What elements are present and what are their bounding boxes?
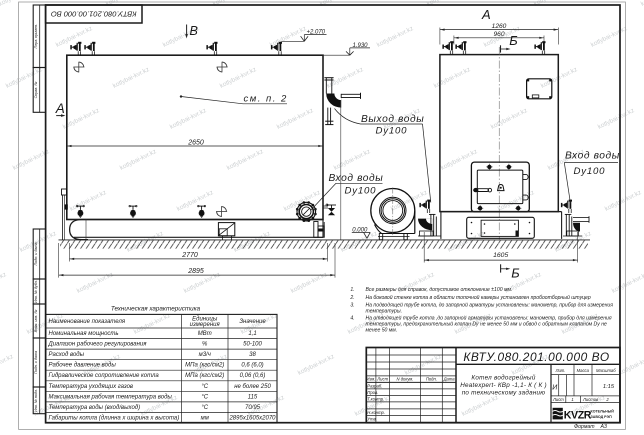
- svg-text:3.: 3.: [350, 303, 354, 309]
- svg-text:А3: А3: [600, 424, 607, 430]
- svg-text:Лист: Лист: [552, 397, 564, 402]
- svg-text:МПа (кгс/см2): МПа (кгс/см2): [185, 363, 224, 369]
- svg-text:Взам. инв. №: Взам. инв. №: [34, 310, 38, 333]
- svg-text:4.: 4.: [350, 315, 354, 321]
- svg-text:50-100: 50-100: [243, 342, 262, 348]
- svg-text:Вход воды: Вход воды: [565, 151, 620, 162]
- svg-text:м3/ч: м3/ч: [199, 352, 211, 358]
- svg-text:Т.контр.: Т.контр.: [367, 396, 384, 401]
- svg-text:температуры, предохранительный: температуры, предохранительный клапан Dу…: [366, 320, 608, 327]
- svg-text:Dy100: Dy100: [345, 186, 377, 197]
- svg-text:мм: мм: [201, 415, 209, 421]
- svg-text:Техническая характеристика: Техническая характеристика: [111, 306, 201, 313]
- svg-text:А: А: [55, 101, 65, 116]
- svg-text:1.930: 1.930: [353, 43, 369, 49]
- svg-text:70/95: 70/95: [245, 405, 261, 411]
- svg-text:Dy100: Dy100: [376, 126, 408, 137]
- svg-text:Пров.: Пров.: [367, 390, 378, 395]
- svg-text:см. п. 2: см. п. 2: [244, 94, 288, 105]
- svg-text:°С: °С: [201, 405, 208, 411]
- svg-text:2650: 2650: [187, 139, 204, 146]
- svg-text:Наименование показателя: Наименование показателя: [49, 319, 126, 325]
- svg-text:Лист: Лист: [376, 377, 388, 382]
- svg-text:KVZR: KVZR: [564, 410, 592, 422]
- svg-text:Н.контр.: Н.контр.: [367, 410, 385, 415]
- svg-text:А: А: [481, 7, 491, 22]
- svg-text:Выход воды: Выход воды: [361, 114, 424, 125]
- svg-text:°С: °С: [201, 384, 208, 390]
- svg-text:2895: 2895: [187, 268, 204, 275]
- svg-text:Котел водогрейный: Котел водогрейный: [471, 374, 535, 382]
- svg-text:Температура воды (вход/выход): Температура воды (вход/выход): [49, 405, 141, 411]
- svg-text:+2.070: +2.070: [307, 30, 326, 36]
- svg-text:измерения: измерения: [190, 322, 221, 328]
- svg-text:Справ. №: Справ. №: [34, 82, 38, 99]
- svg-text:Dy100: Dy100: [574, 166, 606, 177]
- svg-text:N докум.: N докум.: [397, 377, 414, 382]
- svg-text:Разраб.: Разраб.: [367, 383, 382, 388]
- svg-text:В: В: [190, 24, 198, 38]
- svg-text:Номинальная мощность: Номинальная мощность: [49, 331, 119, 337]
- svg-text:На боковой стенке котла в обла: На боковой стенке котла в области топочн…: [366, 294, 591, 301]
- svg-text:температуры.: температуры.: [366, 309, 403, 315]
- svg-text:0,06 (0,6): 0,06 (0,6): [240, 373, 266, 379]
- svg-text:Вход воды: Вход воды: [329, 173, 384, 184]
- svg-text:по техническому заданию: по техническому заданию: [462, 389, 546, 397]
- svg-text:Габариты котла (длинна х ширин: Габариты котла (длинна х ширина х высота…: [49, 415, 180, 421]
- svg-text:Heatexpert- КВр -1,1- К ( К ): Heatexpert- КВр -1,1- К ( К ): [460, 382, 547, 389]
- svg-text:1605: 1605: [493, 252, 508, 259]
- svg-text:КВТУ.080.201.00.000 ВО: КВТУ.080.201.00.000 ВО: [463, 350, 609, 364]
- svg-text:1260: 1260: [492, 23, 507, 30]
- svg-text:Формат: Формат: [574, 424, 595, 430]
- svg-text:КВТУ.080.201.00.000 ВО: КВТУ.080.201.00.000 ВО: [51, 9, 137, 18]
- svg-text:Б: Б: [511, 265, 520, 280]
- svg-text:°С: °С: [201, 394, 208, 400]
- svg-text:Все размеры для справок, допус: Все размеры для справок, допустимое откл…: [366, 287, 513, 293]
- svg-text:Инв. № подл.: Инв. № подл.: [34, 389, 38, 412]
- svg-text:960: 960: [493, 31, 504, 38]
- svg-text:Температура уходящих газов: Температура уходящих газов: [49, 384, 134, 390]
- svg-text:%: %: [202, 342, 208, 348]
- svg-text:На отводящей трубе котла ,до з: На отводящей трубе котла ,до запорной ар…: [366, 314, 612, 321]
- svg-text:Инв. № дубл.: Инв. № дубл.: [34, 280, 38, 303]
- svg-text:Дата: Дата: [443, 377, 456, 382]
- svg-text:Гидравлическое сопротивление к: Гидравлическое сопротивление котла: [49, 373, 160, 379]
- svg-text:Рабочее давление воды: Рабочее давление воды: [49, 363, 117, 369]
- svg-text:МВт: МВт: [198, 331, 212, 337]
- svg-text:1:15: 1:15: [603, 384, 615, 390]
- svg-text:Утв.: Утв.: [367, 417, 377, 422]
- svg-text:38: 38: [249, 352, 256, 358]
- svg-text:2895х1605х2070: 2895х1605х2070: [228, 415, 276, 421]
- svg-text:ЗАВОД РЭП: ЗАВОД РЭП: [591, 415, 613, 419]
- svg-text:2770: 2770: [181, 252, 198, 259]
- svg-text:На подводящей трубе котла, до: На подводящей трубе котла, до запорной а…: [366, 302, 614, 309]
- svg-text:МПа (кгс/см2): МПа (кгс/см2): [185, 373, 224, 379]
- svg-text:Масса: Масса: [577, 368, 590, 373]
- svg-text:Подп.: Подп.: [426, 377, 437, 382]
- svg-text:Масштаб: Масштаб: [596, 368, 616, 373]
- svg-text:Изм.: Изм.: [367, 377, 376, 382]
- svg-text:1,1: 1,1: [248, 331, 256, 337]
- svg-text:менее 50 мм.: менее 50 мм.: [366, 327, 398, 333]
- svg-text:1: 1: [571, 397, 573, 402]
- svg-text:Максимальная рабочая температу: Максимальная рабочая температура воды: [49, 394, 173, 400]
- svg-text:Б: Б: [509, 33, 518, 48]
- svg-text:0,6 (6,0): 0,6 (6,0): [241, 363, 263, 369]
- svg-text:Перв. примен.: Перв. примен.: [34, 24, 38, 49]
- svg-text:1.: 1.: [350, 287, 354, 293]
- svg-text:115: 115: [248, 394, 258, 400]
- svg-text:Диапазон рабочего регулировани: Диапазон рабочего регулирования: [48, 342, 148, 348]
- svg-text:Расход воды: Расход воды: [49, 352, 85, 358]
- svg-text:КОТЕЛЬНЫЙ: КОТЕЛЬНЫЙ: [591, 410, 615, 414]
- svg-text:Листов: Листов: [582, 397, 599, 402]
- svg-text:не более 250: не более 250: [234, 384, 271, 390]
- svg-text:2.: 2.: [349, 295, 354, 301]
- svg-text:Лит.: Лит.: [555, 368, 566, 373]
- svg-text:Подп. и дата: Подп. и дата: [34, 242, 38, 265]
- svg-text:Подп. и дата: Подп. и дата: [34, 351, 38, 374]
- svg-text:Значение: Значение: [239, 319, 266, 325]
